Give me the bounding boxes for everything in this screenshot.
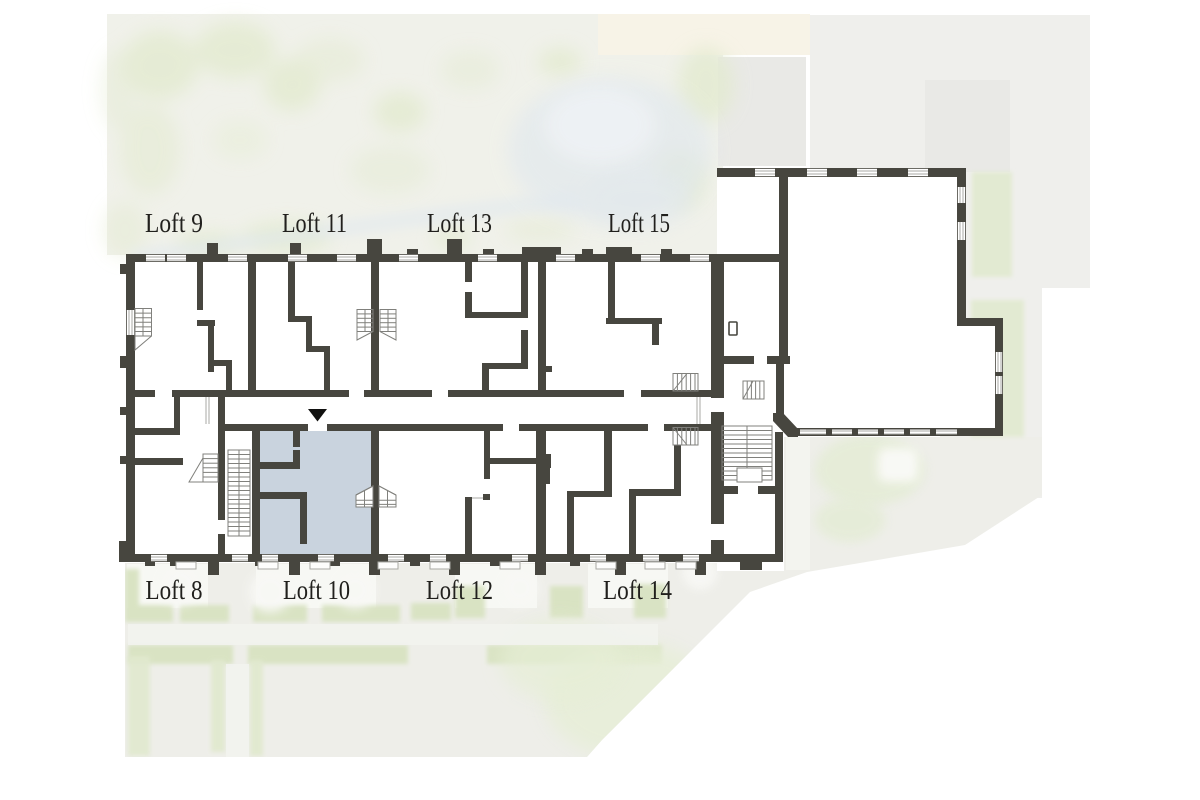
svg-text:Loft 12: Loft 12 [426,575,493,605]
svg-text:Loft 11: Loft 11 [282,208,347,238]
svg-text:Loft 9: Loft 9 [145,208,203,238]
svg-text:Loft 10: Loft 10 [283,575,350,605]
svg-text:Loft 15: Loft 15 [608,208,670,238]
svg-text:Loft 8: Loft 8 [146,575,203,605]
svg-text:Loft 13: Loft 13 [427,208,492,238]
svg-text:Loft 14: Loft 14 [603,575,672,605]
